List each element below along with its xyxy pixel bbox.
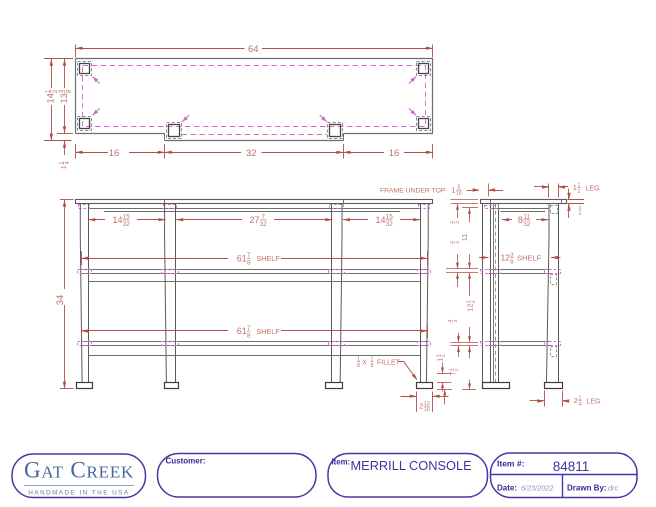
svg-text:8: 8 (65, 89, 72, 93)
svg-text:Item #:: Item #: (497, 459, 525, 469)
svg-text:32: 32 (260, 221, 268, 228)
svg-text:SHELF: SHELF (257, 254, 281, 263)
svg-text:16: 16 (389, 148, 400, 159)
svg-text:32: 32 (123, 221, 131, 228)
svg-text:HANDMADE IN THE USA: HANDMADE IN THE USA (28, 489, 129, 496)
svg-text:32: 32 (246, 148, 257, 159)
svg-text:LEG: LEG (586, 185, 600, 192)
svg-text:drc: drc (608, 483, 618, 492)
svg-text:7: 7 (261, 214, 265, 221)
svg-text:61: 61 (237, 253, 247, 263)
svg-text:8: 8 (247, 260, 251, 267)
svg-text:8: 8 (357, 363, 360, 369)
svg-text:SHELF: SHELF (517, 253, 542, 262)
svg-text:4: 4 (471, 300, 477, 303)
svg-text:14: 14 (113, 215, 123, 225)
svg-text:SHELF: SHELF (257, 327, 281, 336)
svg-text:FILLET: FILLET (377, 359, 401, 366)
svg-text:4: 4 (65, 161, 71, 164)
svg-text:3: 3 (58, 89, 65, 93)
svg-text:2: 2 (454, 368, 460, 371)
svg-text:Customer:: Customer: (166, 457, 206, 466)
svg-text:13: 13 (59, 93, 69, 103)
svg-text:61: 61 (237, 326, 247, 336)
svg-text:11: 11 (462, 234, 469, 241)
svg-text:12: 12 (501, 253, 511, 263)
svg-text:6/23/2022: 6/23/2022 (521, 483, 553, 492)
svg-text:14: 14 (376, 215, 386, 225)
svg-text:16: 16 (456, 191, 462, 197)
svg-text:64: 64 (248, 44, 259, 55)
svg-text:GAT CREEK: GAT CREEK (24, 458, 134, 483)
svg-text:X: X (362, 359, 367, 366)
svg-text:32: 32 (523, 221, 531, 228)
svg-text:4: 4 (453, 319, 459, 322)
svg-text:14: 14 (46, 93, 56, 103)
svg-text:2: 2 (574, 396, 578, 405)
svg-text:32: 32 (386, 221, 394, 228)
svg-text:Date:: Date: (497, 484, 517, 493)
svg-text:8: 8 (371, 363, 374, 369)
svg-text:16: 16 (424, 407, 430, 413)
svg-text:34: 34 (55, 295, 66, 306)
svg-text:11: 11 (524, 214, 531, 221)
svg-text:1: 1 (573, 183, 577, 192)
svg-text:LEG: LEG (587, 399, 601, 406)
svg-text:12: 12 (468, 304, 475, 312)
svg-text:27: 27 (250, 215, 260, 225)
svg-text:1: 1 (44, 89, 51, 93)
svg-text:15: 15 (123, 214, 131, 221)
svg-text:4: 4 (579, 211, 582, 217)
svg-text:Item:: Item: (332, 458, 351, 467)
svg-text:7: 7 (247, 325, 251, 332)
svg-text:16: 16 (109, 148, 120, 159)
svg-text:84811: 84811 (553, 459, 590, 474)
svg-text:8: 8 (247, 332, 251, 339)
svg-text:MERRILL CONSOLE: MERRILL CONSOLE (351, 458, 472, 473)
svg-text:4: 4 (578, 402, 581, 408)
svg-text:1: 1 (59, 165, 68, 169)
svg-text:4: 4 (441, 354, 447, 357)
svg-text:2: 2 (577, 189, 580, 195)
svg-text:4: 4 (455, 241, 461, 244)
svg-text:7: 7 (247, 252, 251, 259)
svg-text:4: 4 (455, 221, 461, 224)
svg-text:15: 15 (386, 214, 394, 221)
svg-text:8: 8 (510, 259, 514, 265)
svg-text:Drawn By:: Drawn By: (567, 484, 607, 493)
svg-text:2: 2 (419, 402, 423, 411)
svg-text:7: 7 (451, 372, 458, 376)
svg-text:1: 1 (438, 358, 445, 362)
svg-text:1: 1 (452, 185, 456, 194)
svg-text:FRAME UNDER TOP: FRAME UNDER TOP (380, 188, 446, 195)
svg-text:8: 8 (518, 215, 523, 225)
